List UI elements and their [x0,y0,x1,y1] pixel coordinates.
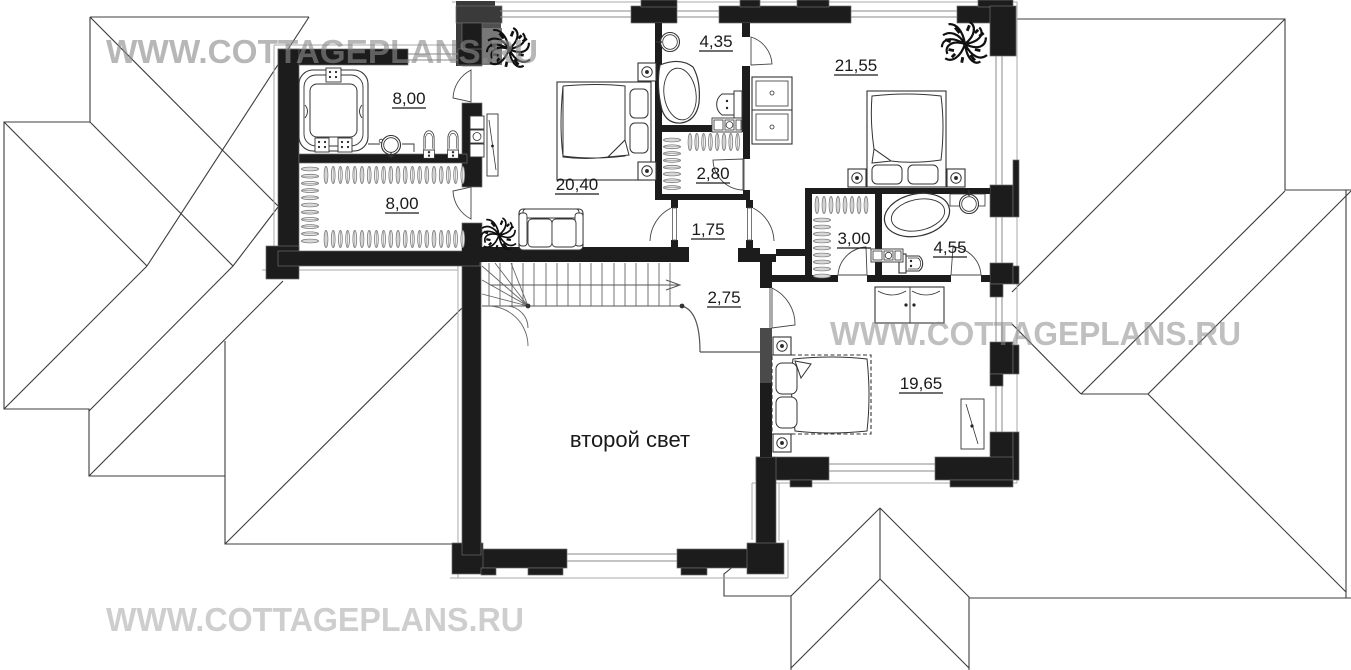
svg-text:21,55: 21,55 [835,56,878,75]
svg-text:3,00: 3,00 [837,229,870,248]
svg-text:WWW.COTTAGEPLANS.RU: WWW.COTTAGEPLANS.RU [830,315,1241,352]
svg-text:4,55: 4,55 [933,238,966,257]
svg-text:второй свет: второй свет [570,427,690,452]
svg-text:19,65: 19,65 [900,374,943,393]
svg-text:WWW.COTTAGEPLANS.RU: WWW.COTTAGEPLANS.RU [106,33,538,70]
svg-text:20,40: 20,40 [556,175,599,194]
svg-text:2,80: 2,80 [696,164,729,183]
svg-text:2,75: 2,75 [707,288,740,307]
svg-text:WWW.COTTAGEPLANS.RU: WWW.COTTAGEPLANS.RU [106,601,524,638]
svg-text:1,75: 1,75 [691,220,724,239]
svg-text:8,00: 8,00 [392,89,425,108]
svg-text:4,35: 4,35 [699,32,732,51]
svg-text:8,00: 8,00 [385,194,418,213]
